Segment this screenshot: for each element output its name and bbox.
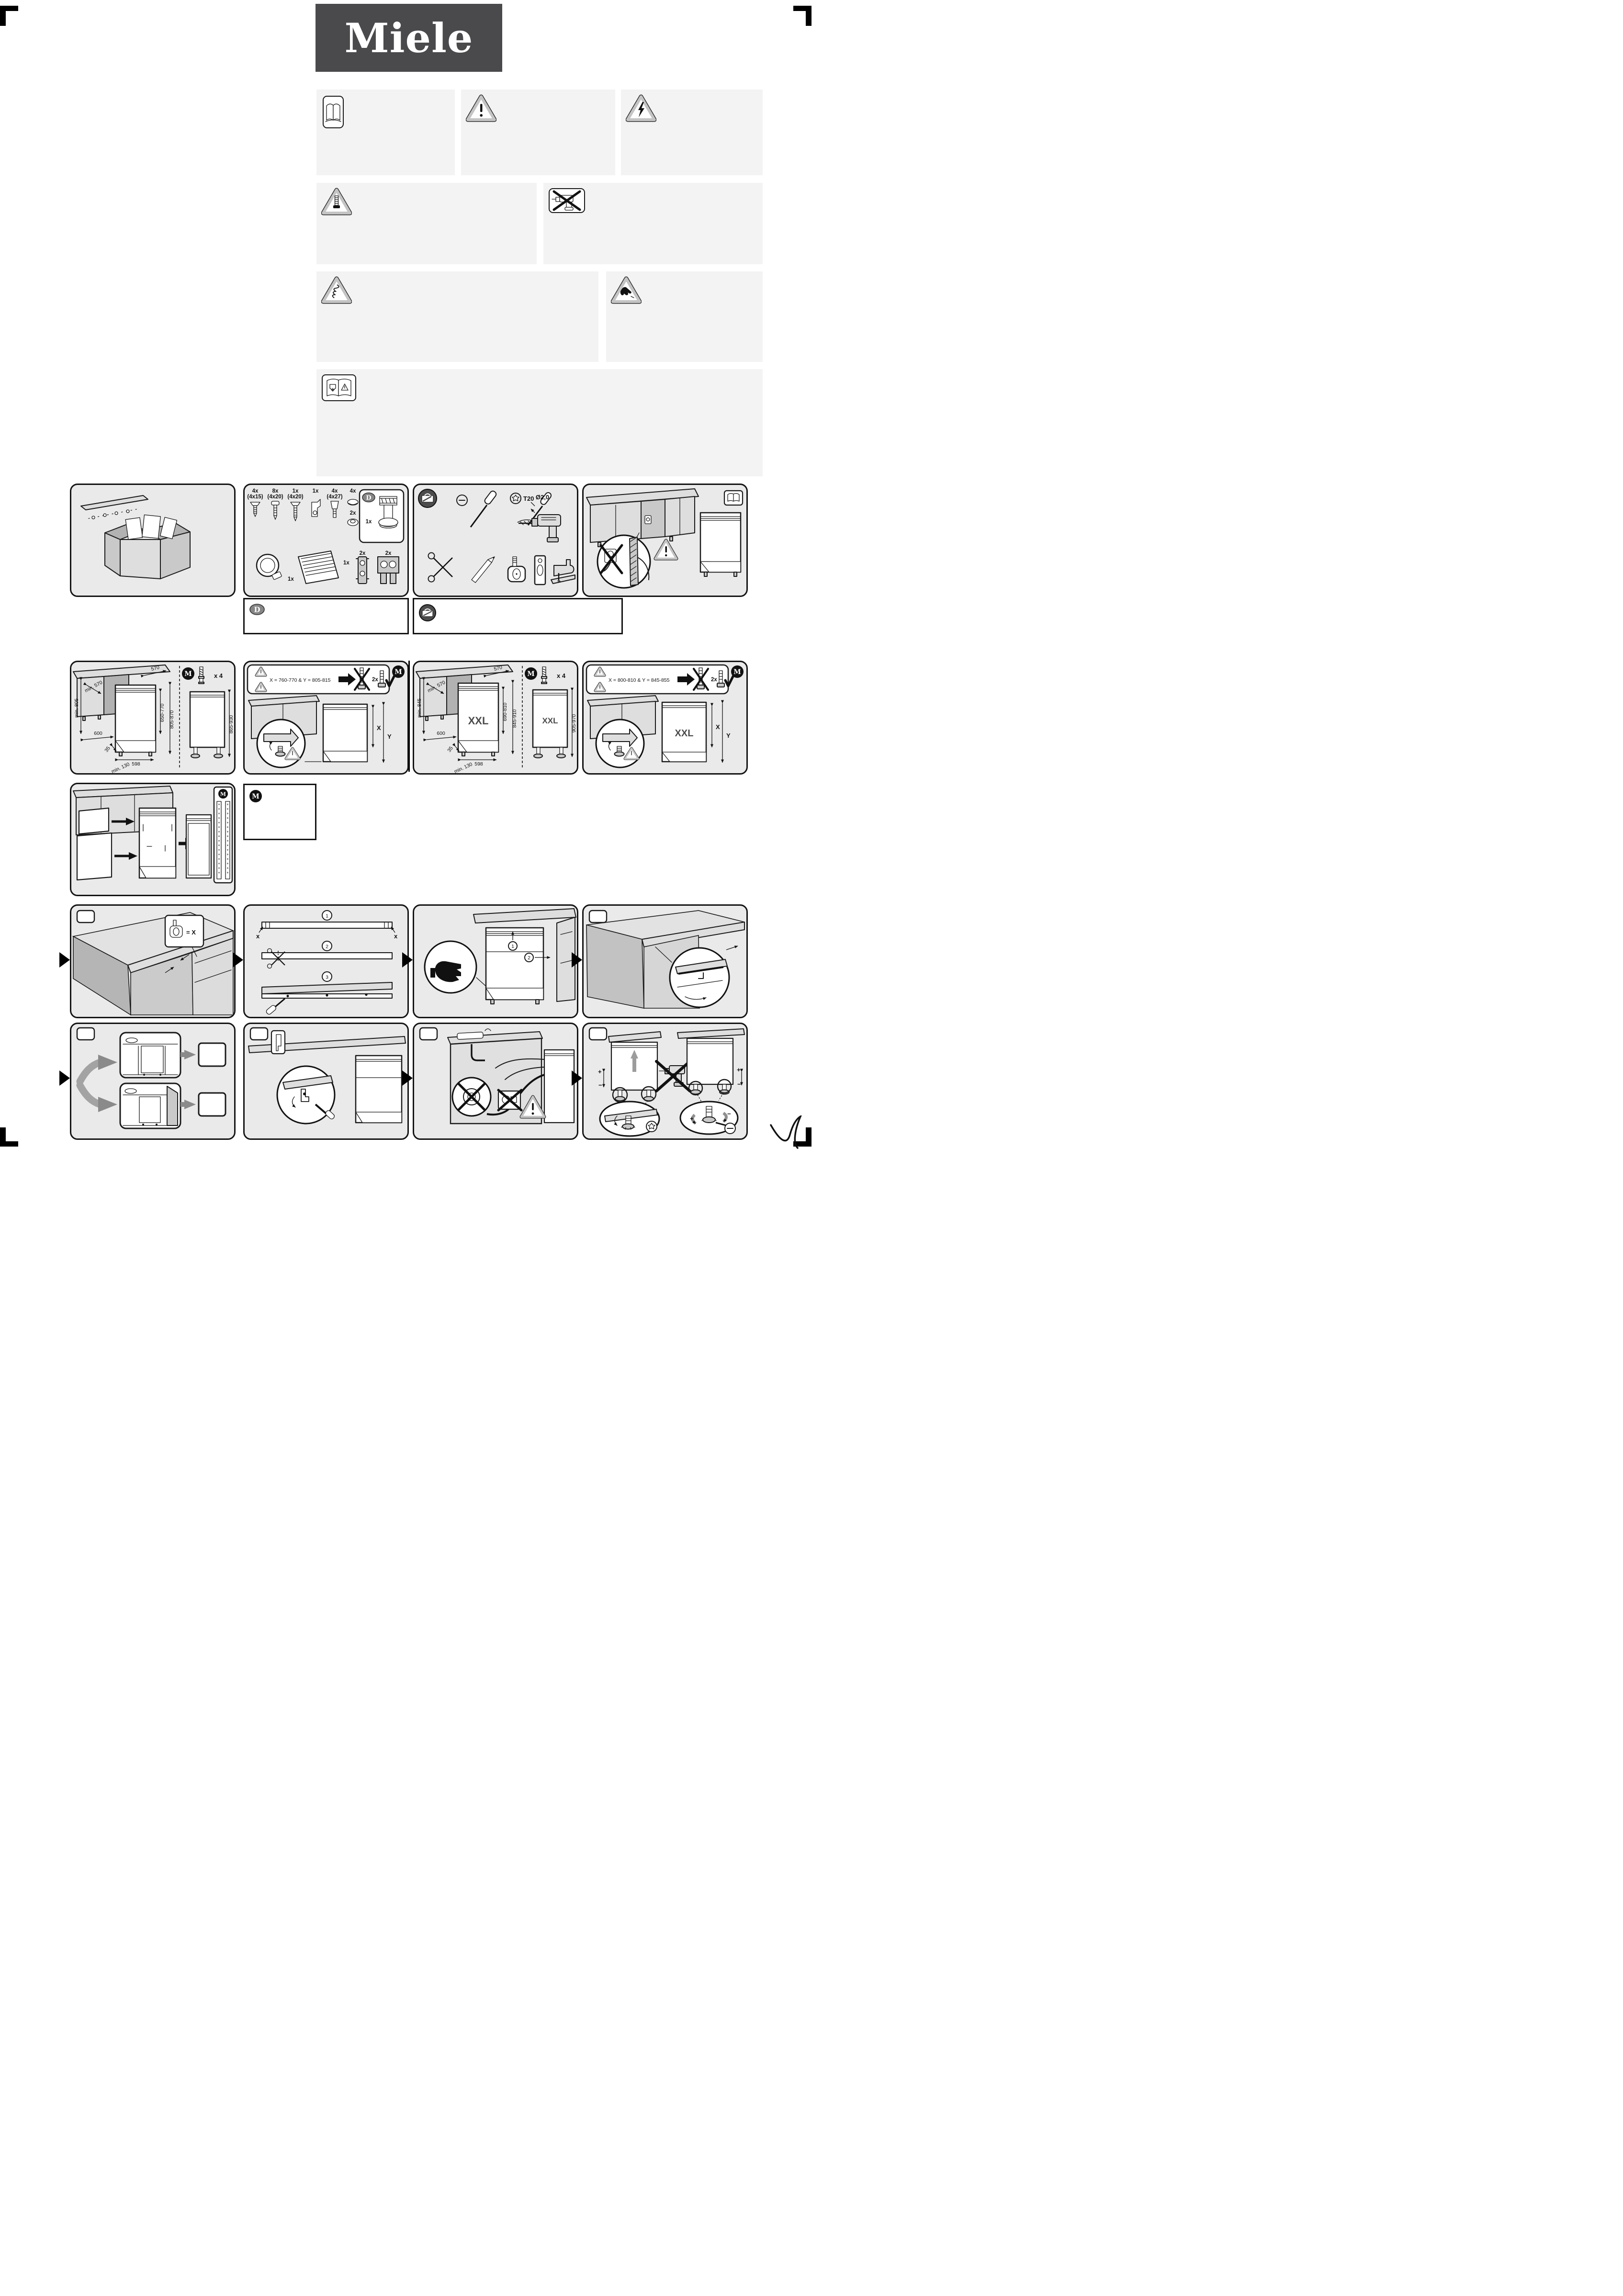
- svg-text:4x: 4x: [332, 488, 338, 494]
- panel-door-mounting: M: [70, 783, 236, 896]
- torx-adjust-magnifier: [600, 1102, 659, 1136]
- svg-text:M: M: [184, 670, 192, 678]
- svg-text:(4x27): (4x27): [327, 494, 342, 500]
- tape-measure-icon: [508, 557, 525, 582]
- dishwasher-with-door: [186, 815, 211, 878]
- panel-tools: T20 Ø2,0: [413, 484, 578, 597]
- caption-box-tools: [413, 598, 623, 634]
- badge-d: D: [366, 495, 371, 502]
- svg-text:M: M: [394, 668, 402, 676]
- screw-warning-icon: [321, 188, 352, 215]
- svg-text:650-770: 650-770: [159, 704, 165, 722]
- panel-dimensions-xxl: XXL min. 845 min. 570 600 570 690-810 84…: [413, 661, 578, 775]
- dishwasher: [486, 928, 543, 1004]
- svg-text:min. 845: min. 845: [417, 698, 422, 718]
- panel-dimensions-standard: min. 805 min. 570 600 570 650-770 805-87…: [70, 661, 236, 775]
- dishwasher: [700, 513, 741, 576]
- svg-text:598: 598: [474, 761, 483, 767]
- flow-chevron: [402, 952, 413, 968]
- m-badge: M: [731, 665, 744, 678]
- svg-text:M: M: [220, 791, 226, 798]
- svg-text:2x: 2x: [372, 677, 378, 683]
- svg-text:min. 130: min. 130: [453, 762, 473, 773]
- flat-screw-adjust-magnifier: + −: [680, 1102, 738, 1134]
- trim-strip-illustration: 1 x x 2 3: [245, 906, 407, 1017]
- dims-row-divider: [408, 661, 410, 772]
- svg-text:1x: 1x: [288, 576, 294, 582]
- unpacking-illustration: [71, 485, 234, 596]
- flow-chevron: [233, 952, 243, 968]
- toolbox-badge-icon: [418, 489, 437, 507]
- warning-triangle-icon: [466, 94, 496, 122]
- warning-box-spring: [316, 271, 598, 362]
- option-reference-box: [199, 1043, 225, 1066]
- svg-text:1x: 1x: [313, 488, 319, 494]
- svg-text:2x: 2x: [360, 551, 366, 556]
- caption-box-adapter: D: [243, 598, 409, 634]
- svg-text:X = 800-810 & Y = 845-855: X = 800-810 & Y = 845-855: [609, 677, 670, 683]
- edge-protection-illustration: [584, 906, 746, 1017]
- svg-text:600: 600: [437, 731, 445, 736]
- svg-text:905-970: 905-970: [571, 714, 577, 733]
- svg-text:35: 35: [446, 745, 454, 754]
- warning-box-manual-drain: [316, 369, 763, 476]
- miele-logo-text: Miele: [345, 14, 473, 62]
- svg-text:2: 2: [326, 944, 328, 950]
- svg-text:Ø2,0: Ø2,0: [536, 494, 549, 501]
- dimensions-xxl-illustration: XXL min. 845 min. 570 600 570 690-810 84…: [414, 662, 577, 773]
- panel-unpacking: [70, 484, 236, 597]
- plinth-magnifier: [596, 720, 644, 767]
- svg-text:2: 2: [528, 955, 530, 961]
- m-badge: M: [182, 667, 194, 680]
- toolbox-badge-icon: [417, 602, 438, 623]
- svg-text:8x: 8x: [272, 488, 279, 494]
- miele-swoosh: [766, 1115, 811, 1149]
- svg-text:865-930: 865-930: [228, 715, 234, 734]
- option-corner-thumb: [120, 1083, 180, 1128]
- drilling-template-box: M: [214, 787, 232, 883]
- pencil-icon: [472, 557, 495, 583]
- svg-text:600: 600: [94, 731, 102, 736]
- warning-box-general: [461, 90, 615, 175]
- warning-box-no-drill: [543, 183, 763, 264]
- dishwasher-freestanding: [190, 692, 225, 758]
- book-warning-icon: [321, 374, 357, 402]
- warning-box-sharp-edges: [606, 271, 763, 362]
- m-badge: M: [392, 665, 405, 678]
- dishwasher: [356, 1056, 402, 1123]
- option-mid-row-thumb: [120, 1033, 180, 1078]
- svg-text:(4x15): (4x15): [247, 494, 263, 500]
- warning-box-screw: [316, 183, 537, 264]
- svg-text:X: X: [377, 724, 381, 732]
- adjustable-foot-icon: [199, 667, 204, 684]
- flow-chevron: [402, 1070, 413, 1086]
- crop-mark-bottom-left-v: [0, 1127, 6, 1147]
- panel-measure-countertop: = X: [70, 904, 236, 1018]
- svg-text:T20: T20: [523, 495, 534, 502]
- caption-box-template: M: [243, 784, 316, 840]
- parts-illustration: 4x (4x15) 8x (4x20) 1x (4x20) 1x 4x (4x2…: [245, 485, 407, 596]
- dishwasher-xxl: XXL: [458, 683, 498, 756]
- svg-text:+: +: [737, 1066, 741, 1073]
- svg-text:3: 3: [326, 975, 328, 980]
- hand-cut-icon: [611, 276, 642, 304]
- svg-text:2x: 2x: [385, 551, 392, 556]
- strip-magnifier: [670, 948, 729, 1007]
- dishwasher: [544, 1050, 574, 1123]
- svg-text:x: x: [256, 933, 260, 940]
- svg-text:4x: 4x: [252, 488, 259, 494]
- svg-text:+: +: [598, 1068, 602, 1075]
- svg-text:X = 760-770 & Y = 805-815: X = 760-770 & Y = 805-815: [270, 677, 331, 683]
- flow-chevron: [59, 952, 70, 968]
- svg-text:35: 35: [103, 745, 112, 754]
- svg-text:845-910: 845-910: [512, 709, 518, 728]
- jigsaw-icon: [551, 560, 575, 584]
- panel-parts-list: 4x (4x15) 8x (4x20) 1x (4x20) 1x 4x (4x2…: [243, 484, 409, 597]
- svg-text:XXL: XXL: [542, 716, 558, 725]
- panel-power-connection: [582, 484, 748, 597]
- scissors-icon: [428, 553, 453, 582]
- dishwasher-carcase: [139, 808, 176, 878]
- panel-installation-options: [70, 1023, 236, 1140]
- svg-text:1: 1: [511, 944, 514, 949]
- svg-text:1x: 1x: [293, 488, 299, 494]
- svg-text:XXL: XXL: [468, 715, 489, 727]
- svg-text:4x: 4x: [350, 488, 356, 494]
- electric-hazard-icon: [626, 94, 656, 122]
- hose-radius-crossed-circle: [452, 1078, 491, 1116]
- panel-push-in: 1 2: [413, 904, 578, 1018]
- svg-text:1: 1: [326, 913, 328, 919]
- svg-text:XXL: XXL: [675, 728, 694, 739]
- svg-text:−: −: [727, 1110, 731, 1117]
- svg-text:= X: = X: [186, 929, 196, 936]
- installation-options-illustration: [71, 1024, 234, 1138]
- step-number-box: [420, 1028, 437, 1040]
- spirit-level-icon: [535, 556, 545, 585]
- bracket-magnifier: [277, 1066, 335, 1124]
- svg-text:min. 805: min. 805: [74, 698, 79, 718]
- adjustable-foot-icon: [541, 667, 547, 684]
- power-illustration: [584, 485, 746, 596]
- spring-tension-icon: [321, 276, 352, 304]
- faucet-adapter-box: D 1x: [360, 490, 404, 542]
- levelling-illustration: + −: [584, 1024, 746, 1138]
- warning-box-electric: [621, 90, 763, 175]
- tools-illustration: T20 Ø2,0: [414, 485, 577, 596]
- svg-text:M: M: [252, 793, 259, 800]
- crop-mark-top-left-v: [0, 6, 6, 26]
- m-badge: M: [525, 667, 537, 680]
- svg-text:2x: 2x: [711, 677, 717, 683]
- crop-mark-top-right-v: [806, 6, 811, 26]
- svg-text:x: x: [394, 933, 398, 940]
- measure-countertop-illustration: = X: [71, 906, 234, 1017]
- svg-text:−: −: [598, 1081, 602, 1089]
- callout-standard-illustration: X = 760-770 & Y = 805-815 2x M: [245, 662, 407, 773]
- panel-levelling-feet: + −: [582, 1023, 748, 1140]
- step-number-box: [589, 911, 607, 923]
- d-badge: D: [248, 602, 271, 617]
- dishwasher: [115, 685, 156, 756]
- step-number-box: [77, 1028, 94, 1040]
- push-in-illustration: 1 2: [414, 906, 577, 1017]
- dishwasher-right: [687, 1038, 733, 1094]
- miele-logo: Miele: [316, 4, 502, 72]
- installation-sheet-page: Miele: [0, 0, 811, 1149]
- step-number-box: [77, 911, 94, 923]
- callout-xxl-illustration: X = 800-810 & Y = 845-855 2x M: [584, 662, 746, 773]
- svg-text:1x: 1x: [366, 519, 372, 525]
- warning-box-read-manual: [316, 90, 455, 175]
- dishwasher-xxl-freestanding: XXL: [533, 690, 567, 758]
- panel-foot-callout-standard: X = 760-770 & Y = 805-815 2x M: [243, 661, 409, 775]
- dimensions-standard-illustration: min. 805 min. 570 600 570 650-770 805-87…: [71, 662, 234, 773]
- svg-text:(4x20): (4x20): [287, 494, 303, 500]
- svg-text:1x: 1x: [343, 560, 349, 566]
- svg-text:−: −: [737, 1080, 741, 1088]
- dishwasher-xxl: XXL: [662, 702, 706, 762]
- no-power-drill-icon: [548, 188, 586, 214]
- svg-text:x 4: x 4: [557, 672, 566, 679]
- svg-text:Y: Y: [726, 732, 731, 739]
- svg-text:min. 130: min. 130: [111, 762, 131, 773]
- flow-chevron: [572, 952, 582, 968]
- svg-text:X: X: [716, 723, 720, 731]
- panel-edge-protection: [582, 904, 748, 1018]
- svg-text:(4x20): (4x20): [267, 494, 283, 500]
- panel-water-connections: [413, 1023, 578, 1140]
- open-book-badge: [724, 491, 743, 505]
- option-reference-box: [199, 1093, 225, 1116]
- water-connections-illustration: [414, 1024, 577, 1138]
- panel-trim-strip-steps: 1 x x 2 3: [243, 904, 409, 1018]
- no-socket-inside-icon: [498, 1090, 521, 1110]
- bracket-part-badge: [271, 1031, 285, 1054]
- svg-text:690-810: 690-810: [502, 703, 508, 721]
- m-badge: M: [247, 788, 264, 805]
- svg-text:M: M: [733, 668, 741, 676]
- svg-text:Y: Y: [387, 733, 392, 740]
- svg-text:x 4: x 4: [214, 672, 223, 679]
- flow-chevron: [572, 1070, 582, 1086]
- open-book-icon: [322, 95, 344, 129]
- svg-text:598: 598: [132, 761, 140, 767]
- push-hand-magnifier: [425, 941, 486, 993]
- svg-text:D: D: [254, 606, 260, 614]
- panel-foot-callout-xxl: X = 800-810 & Y = 845-855 2x M: [582, 661, 748, 775]
- panel-fix-bracket: [243, 1023, 409, 1140]
- step-number-box: [589, 1028, 607, 1040]
- flow-chevron: [59, 1070, 70, 1086]
- svg-text:2x: 2x: [350, 510, 356, 516]
- step-number-box: [250, 1028, 268, 1040]
- warning-triangle-icon: [655, 540, 676, 559]
- dishwasher: [323, 704, 367, 762]
- svg-text:805-870: 805-870: [169, 710, 175, 729]
- svg-text:+: +: [690, 1115, 694, 1122]
- svg-text:M: M: [527, 670, 535, 678]
- door-mounting-illustration: M: [71, 784, 234, 895]
- fix-bracket-illustration: [245, 1024, 407, 1138]
- no-drill-icon: [656, 1061, 690, 1091]
